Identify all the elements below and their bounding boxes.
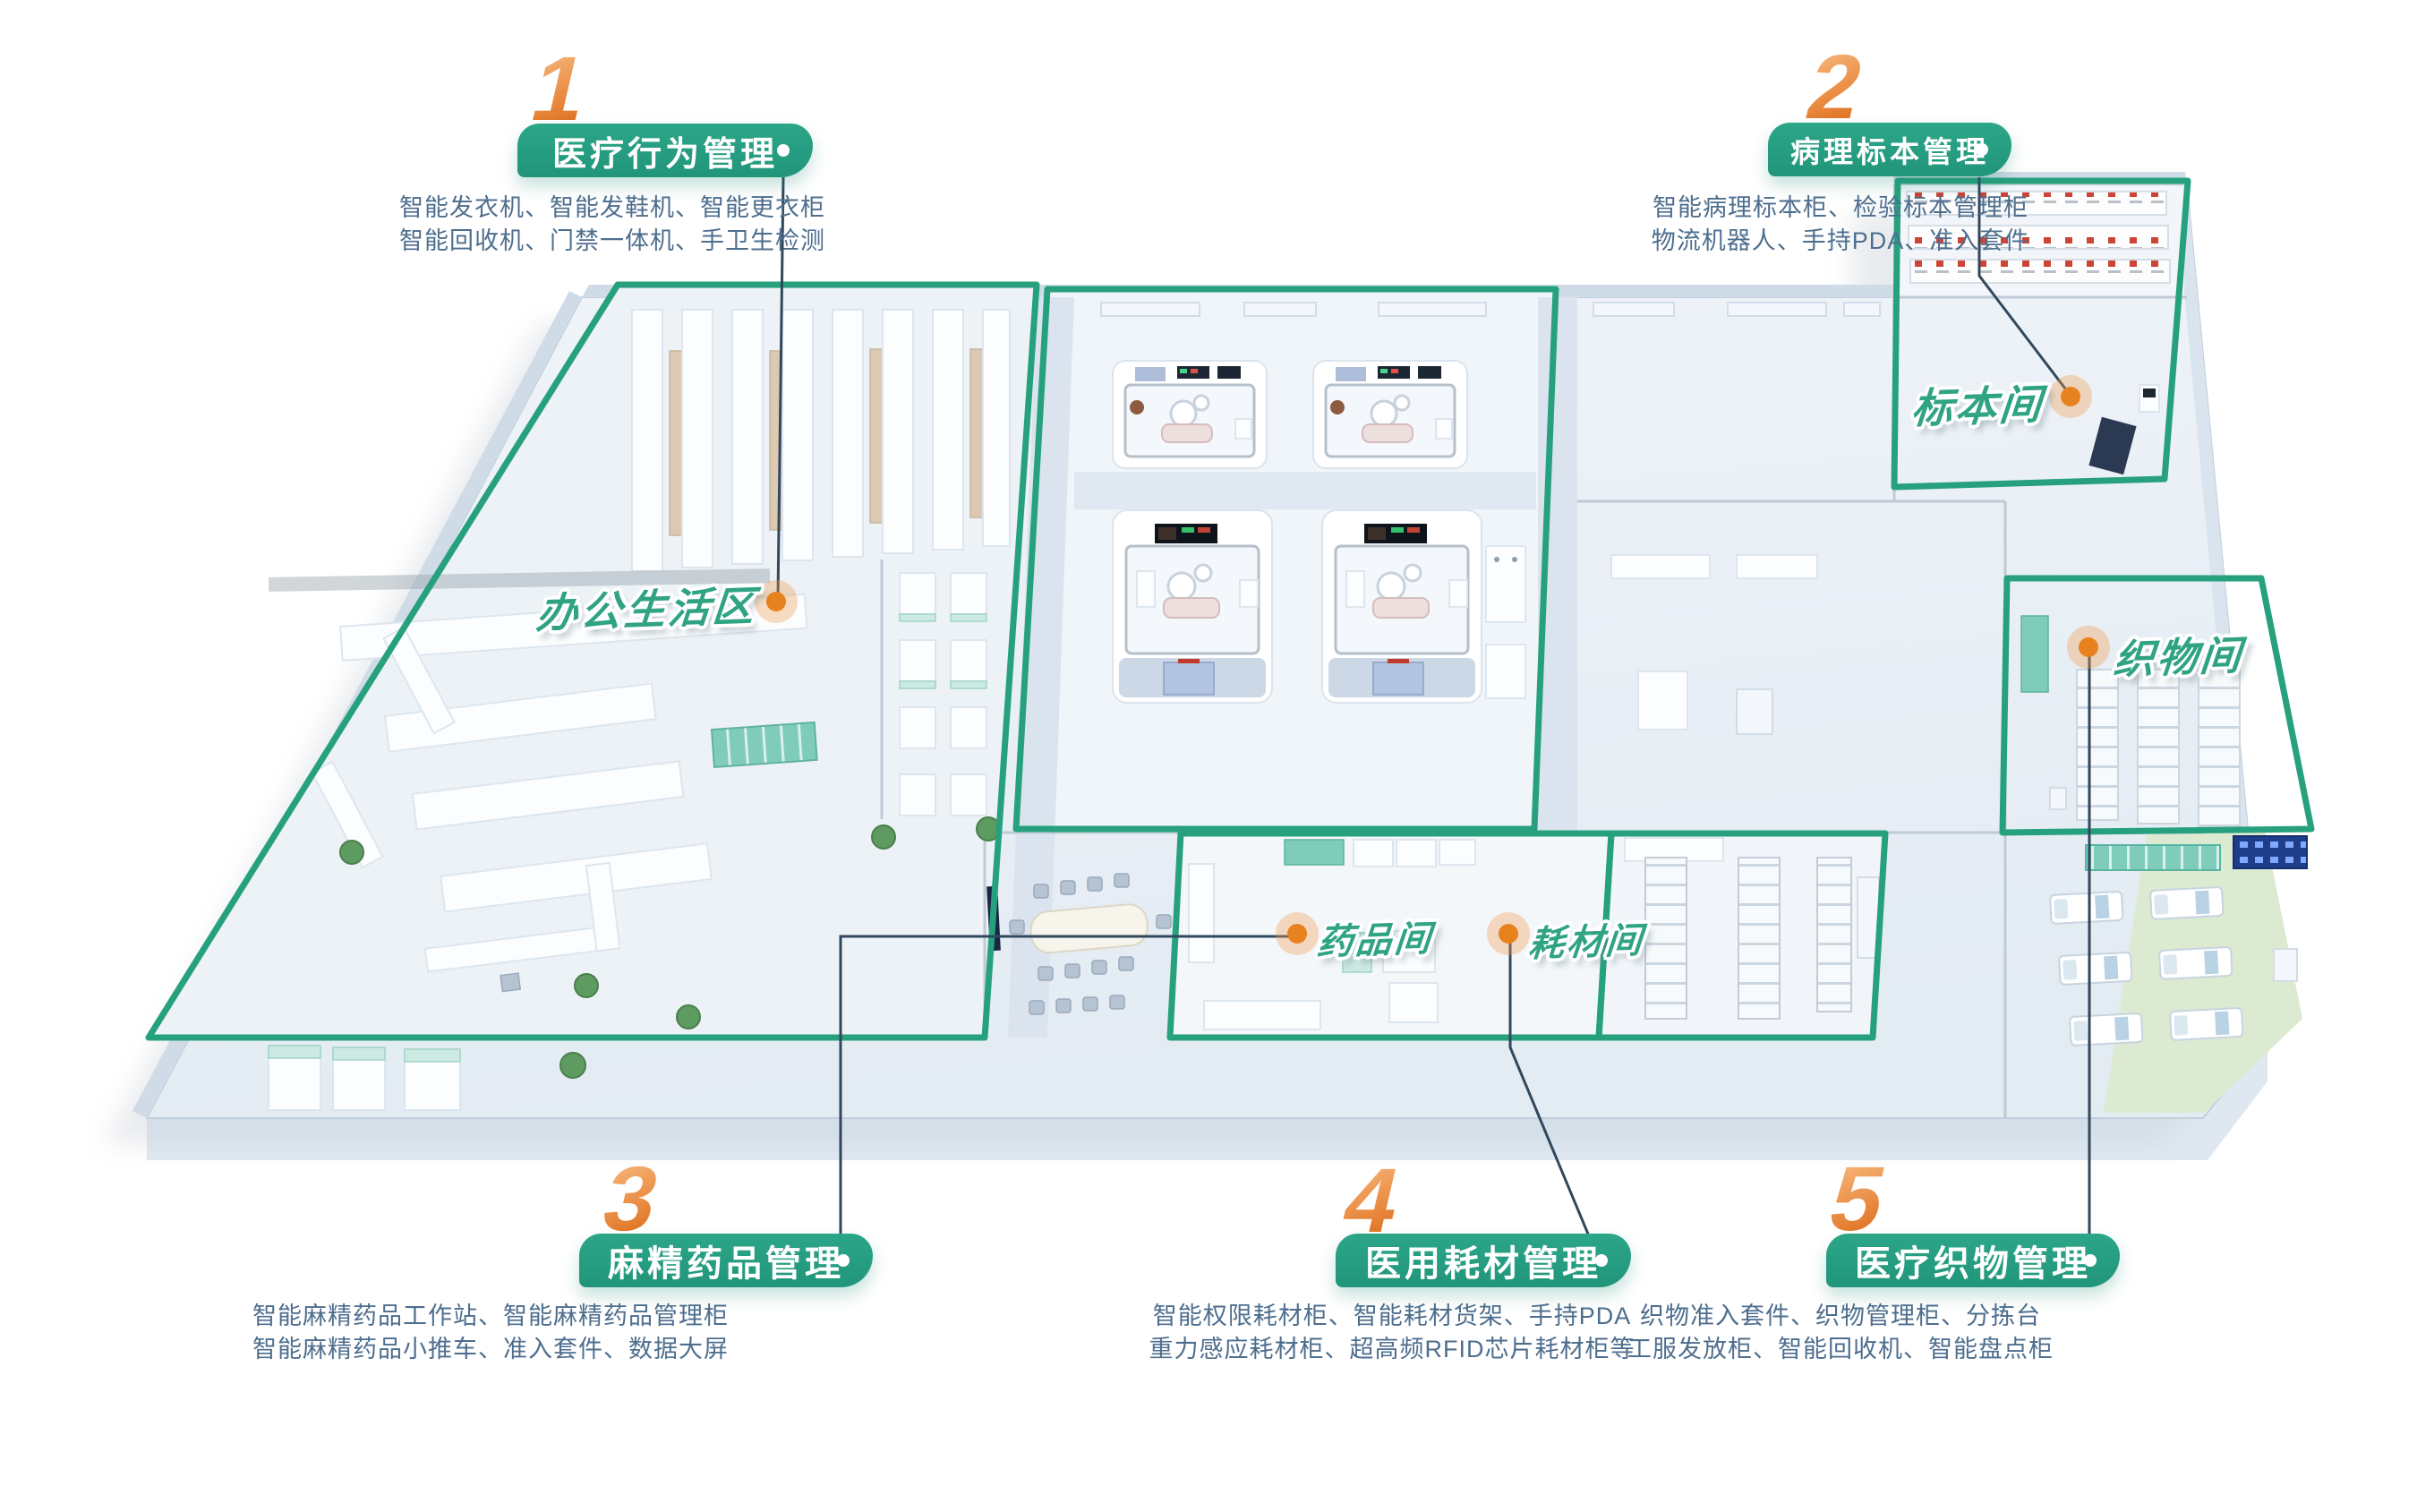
marker-dot-icon xyxy=(2067,626,2110,669)
marker-dot-icon xyxy=(2049,375,2092,418)
section-title: 病理标本管理 xyxy=(1790,128,1989,171)
room-label-office-area: 办公生活区 xyxy=(534,574,760,641)
section-description: 智能病理标本柜、检验标本管理柜 物流机器人、手持PDA、准入套件 xyxy=(1527,192,2154,258)
marker-dot-icon xyxy=(1276,912,1319,955)
pill-dot-icon xyxy=(1976,143,1988,156)
section-title: 医疗织物管理 xyxy=(1855,1234,2091,1286)
marker-dot-icon xyxy=(755,580,798,623)
section-title-badge: 麻精药品管理 xyxy=(579,1234,873,1287)
section-title: 医用耗材管理 xyxy=(1365,1234,1601,1286)
pill-dot-icon xyxy=(837,1254,850,1267)
section-description: 智能发衣机、智能发鞋机、智能更衣柜 智能回收机、门禁一体机、手卫生检测 xyxy=(299,192,926,258)
section-title-badge: 病理标本管理 xyxy=(1768,123,2011,176)
section-description: 织物准入套件、织物管理柜、分拣台 工服发放柜、智能回收机、智能盘点柜 xyxy=(1527,1300,2154,1366)
section-description: 智能麻精药品工作站、智能麻精药品管理柜 智能麻精药品小推车、准入套件、数据大屏 xyxy=(177,1300,804,1366)
section-title: 医疗行为管理 xyxy=(552,126,778,175)
room-label-textile-room: 织物间 xyxy=(2112,623,2246,686)
entrance-machines xyxy=(269,1046,460,1110)
consumable-room-interior xyxy=(1625,838,1879,1019)
hospital-smart-management-infographic: .w{fill:#fbfdfe;stroke:#dde6ee;stroke-wi… xyxy=(0,0,2417,1512)
room-label-medicine-room: 药品间 xyxy=(1315,910,1436,965)
section-title: 麻精药品管理 xyxy=(608,1234,844,1286)
room-label-specimen-room: 标本间 xyxy=(1909,372,2046,435)
section-title-badge: 医疗行为管理 xyxy=(517,124,813,177)
section-title-badge: 医疗织物管理 xyxy=(1826,1234,2120,1287)
room-label-consumable-room: 耗材间 xyxy=(1526,911,1647,967)
pill-dot-icon xyxy=(777,144,790,157)
pill-dot-icon xyxy=(2084,1254,2097,1267)
pill-dot-icon xyxy=(1595,1254,1608,1267)
section-title-badge: 医用耗材管理 xyxy=(1336,1234,1631,1287)
marker-dot-icon xyxy=(1487,912,1530,955)
